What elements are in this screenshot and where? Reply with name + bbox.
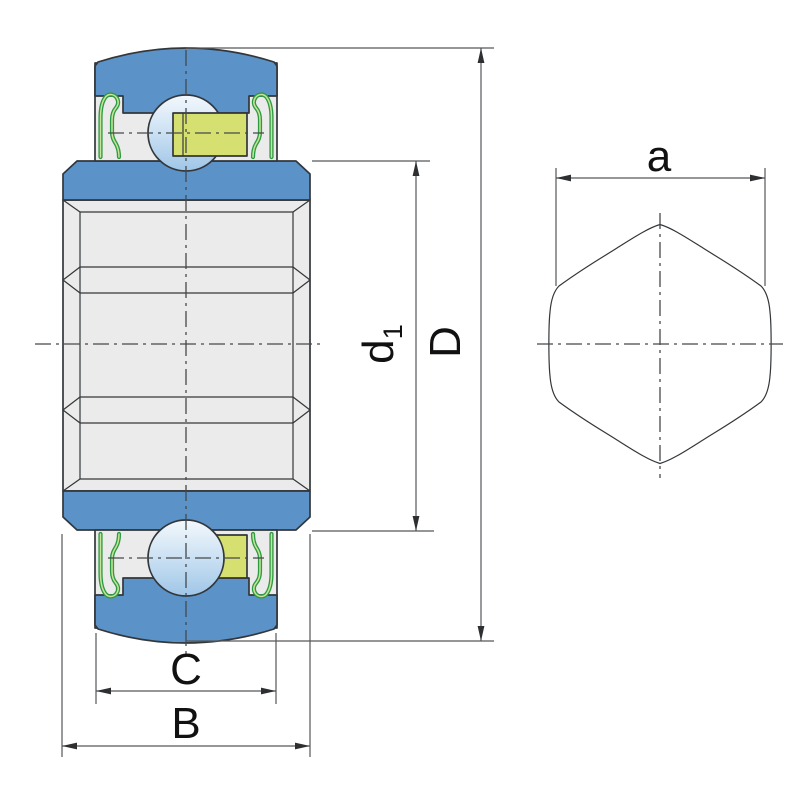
cage-top (173, 113, 247, 156)
dim-d1: d1 (312, 161, 434, 531)
hex-bore-figure: a (537, 132, 783, 478)
dim-d1-arrow-bottom (413, 516, 420, 531)
dim-d1-arrow-top (413, 161, 420, 176)
label-a: a (647, 132, 672, 181)
bearing-technical-drawing: D d1 C B a (0, 0, 800, 800)
dim-D-arrow-top (478, 48, 485, 63)
label-d1: d1 (354, 324, 408, 364)
label-C: C (170, 645, 202, 694)
dim-C-arrow-left (96, 688, 111, 695)
dim-D-arrow-bottom (478, 626, 485, 641)
dim-C-arrow-right (261, 688, 276, 695)
dim-a-arrow-right (750, 175, 765, 182)
dim-B-arrow-right (295, 743, 310, 750)
label-B: B (171, 699, 200, 748)
label-D: D (421, 326, 470, 358)
dim-a-arrow-left (556, 175, 571, 182)
dim-B-arrow-left (62, 743, 77, 750)
